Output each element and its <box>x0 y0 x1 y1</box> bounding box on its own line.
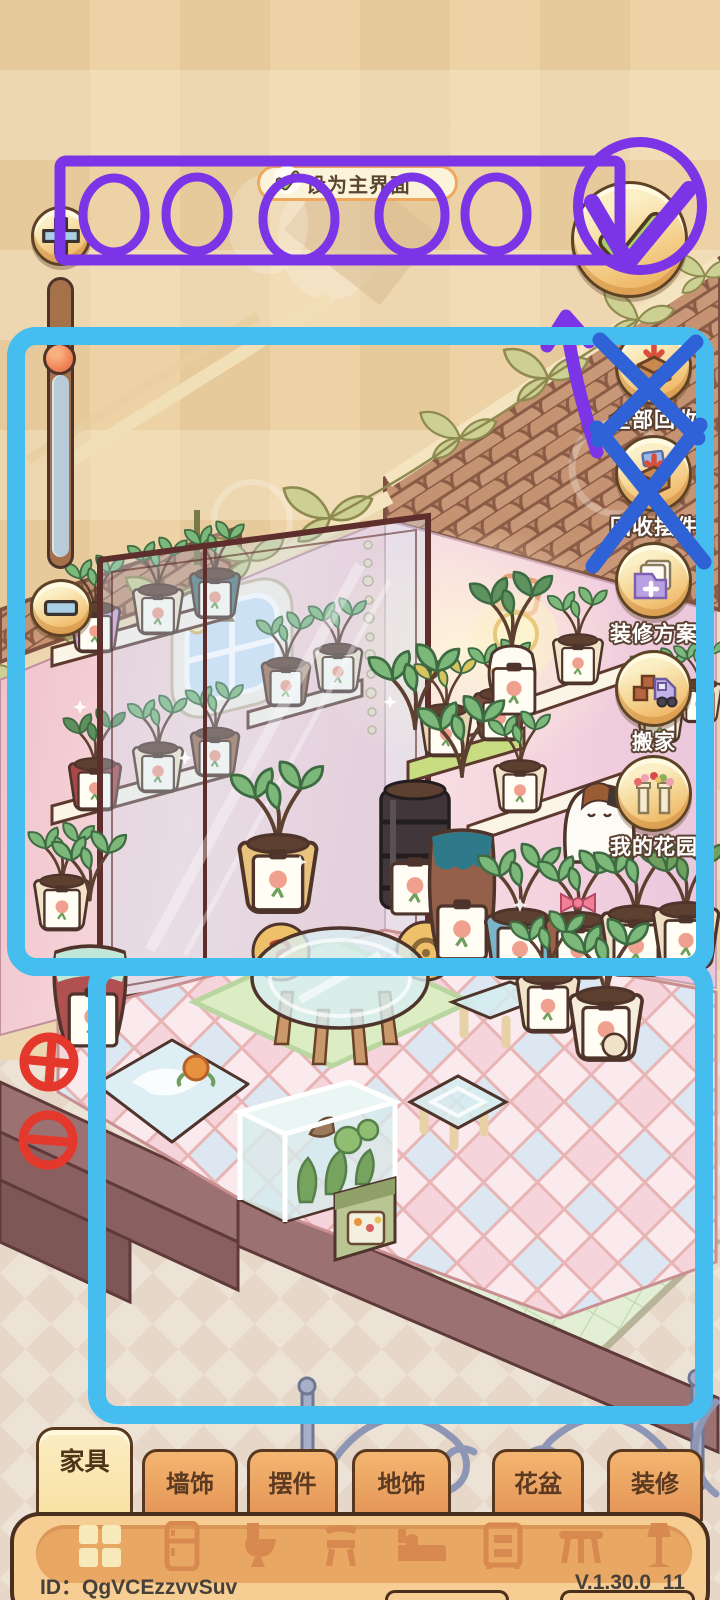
category-chair-button[interactable] <box>313 1518 369 1574</box>
table-icon <box>557 1523 605 1569</box>
background-decor <box>28 158 437 470</box>
bed-icon <box>394 1523 446 1569</box>
category-lamp-button[interactable] <box>631 1518 687 1574</box>
floor-lamp-icon <box>642 1521 676 1571</box>
tab-furniture-label: 家具 <box>59 1442 109 1521</box>
tab-decoration[interactable]: 装修 <box>607 1449 703 1521</box>
tab-flower-pots[interactable]: 花盆 <box>492 1449 584 1521</box>
category-fridge-button[interactable] <box>154 1518 210 1574</box>
decor-plan-folder-icon <box>630 557 678 605</box>
grid-window-icon <box>77 1523 123 1569</box>
category-table-button[interactable] <box>553 1518 609 1574</box>
toilet-icon <box>235 1521 281 1571</box>
category-toilet-button[interactable] <box>230 1518 286 1574</box>
chair-icon <box>319 1522 363 1570</box>
menu-recycle-all-button[interactable] <box>615 328 692 405</box>
app-version: V.1.30.0_11 <box>540 1571 685 1595</box>
slider-fill <box>52 375 69 557</box>
menu-move-house-label: 搬家 <box>590 726 718 756</box>
item-card-stub[interactable] <box>385 1590 509 1600</box>
category-bed-button[interactable] <box>392 1518 448 1574</box>
category-grid-button[interactable] <box>72 1518 128 1574</box>
zoom-out-button[interactable] <box>30 579 92 637</box>
tab-ornaments[interactable]: 摆件 <box>247 1449 338 1521</box>
menu-recycle-ornaments-button[interactable] <box>615 435 692 512</box>
confirm-button[interactable] <box>571 181 688 298</box>
garden-arch-icon <box>630 770 678 818</box>
player-id: ID：QgVCEzzvvSuv <box>40 1571 237 1600</box>
menu-decor-plans-button[interactable] <box>615 542 692 619</box>
checkmark-icon <box>273 166 301 194</box>
menu-recycle-ornaments-label: 回收摆件 <box>590 511 718 541</box>
tab-floor-decor[interactable]: 地饰 <box>352 1449 451 1521</box>
menu-my-garden-button[interactable] <box>615 755 692 832</box>
game-screen: 设为主界面 全部回收 回收摆件 装修方案 搬家 <box>0 0 720 1600</box>
menu-recycle-all-label: 全部回收 <box>590 404 718 434</box>
menu-decor-plans-label: 装修方案 <box>590 618 718 648</box>
menu-move-house-button[interactable] <box>615 650 692 727</box>
set-main-label: 设为主界面 <box>306 169 411 198</box>
recycle-all-box-icon <box>630 343 678 391</box>
nightstand-icon <box>481 1521 525 1571</box>
recycle-ornaments-box-icon <box>630 450 678 498</box>
fridge-icon <box>160 1521 204 1571</box>
category-nightstand-button[interactable] <box>475 1518 531 1574</box>
minus-icon <box>41 588 81 628</box>
zoom-slider[interactable] <box>47 277 74 569</box>
green-checkmark-icon <box>584 194 676 286</box>
set-main-toggle[interactable]: 设为主界面 <box>257 165 458 201</box>
slider-knob[interactable] <box>43 342 76 375</box>
tab-wall-decor[interactable]: 墙饰 <box>142 1449 238 1521</box>
moving-truck-icon <box>629 665 679 713</box>
zoom-in-button[interactable] <box>31 206 91 266</box>
tab-furniture[interactable]: 家具 <box>36 1427 133 1521</box>
menu-my-garden-label: 我的花园 <box>590 831 718 861</box>
plus-icon <box>41 216 81 256</box>
